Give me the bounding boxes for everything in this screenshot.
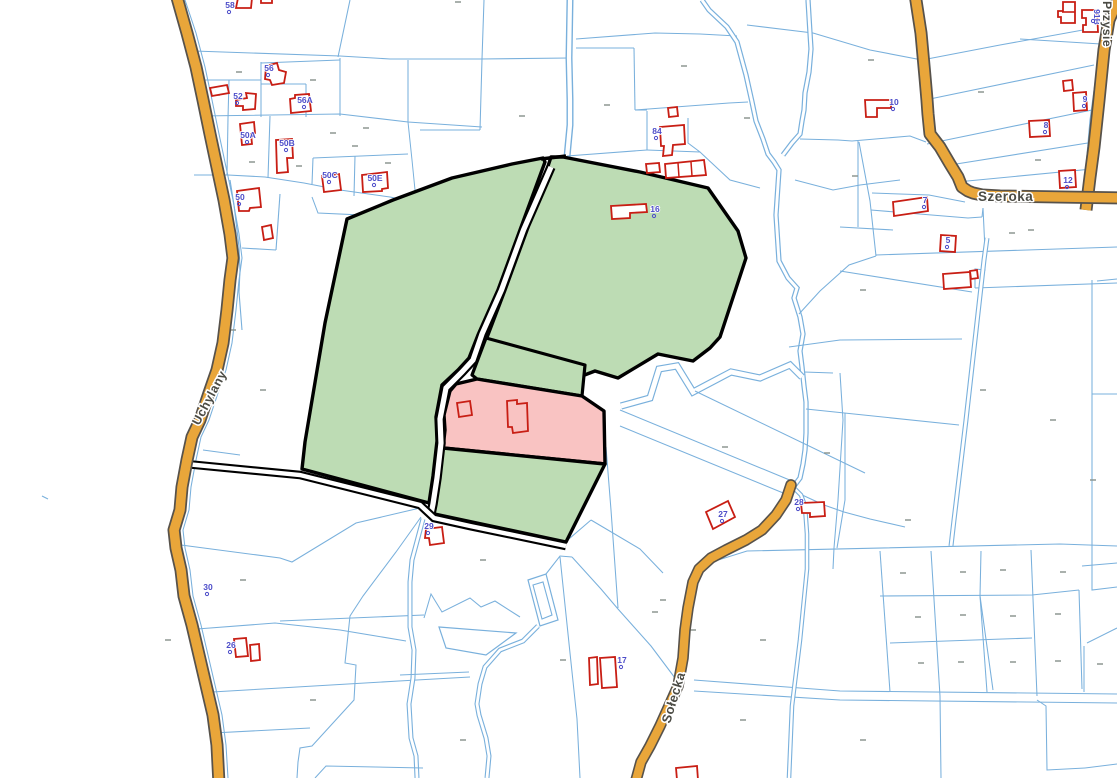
svg-text:56A: 56A [297, 95, 313, 105]
svg-text:28: 28 [794, 497, 804, 507]
svg-text:9: 9 [1083, 94, 1088, 104]
svg-text:26: 26 [226, 640, 236, 650]
svg-text:16: 16 [650, 204, 660, 214]
svg-text:10: 10 [889, 97, 899, 107]
svg-text:17: 17 [617, 655, 627, 665]
svg-text:50E: 50E [367, 173, 382, 183]
svg-text:Przysie: Przysie [1100, 1, 1114, 47]
svg-text:50: 50 [235, 192, 245, 202]
svg-text:7: 7 [923, 195, 928, 205]
svg-text:50A: 50A [240, 130, 256, 140]
svg-text:52: 52 [233, 91, 243, 101]
svg-text:58: 58 [225, 0, 235, 10]
svg-text:5: 5 [946, 235, 951, 245]
svg-text:Szeroka: Szeroka [978, 189, 1033, 204]
svg-text:84: 84 [652, 126, 662, 136]
svg-text:12: 12 [1063, 175, 1073, 185]
svg-text:50C: 50C [322, 170, 338, 180]
svg-text:30: 30 [203, 582, 213, 592]
svg-text:56: 56 [264, 63, 274, 73]
svg-text:8: 8 [1044, 120, 1049, 130]
svg-text:50B: 50B [279, 138, 295, 148]
svg-text:27: 27 [718, 509, 728, 519]
svg-text:29: 29 [424, 521, 434, 531]
